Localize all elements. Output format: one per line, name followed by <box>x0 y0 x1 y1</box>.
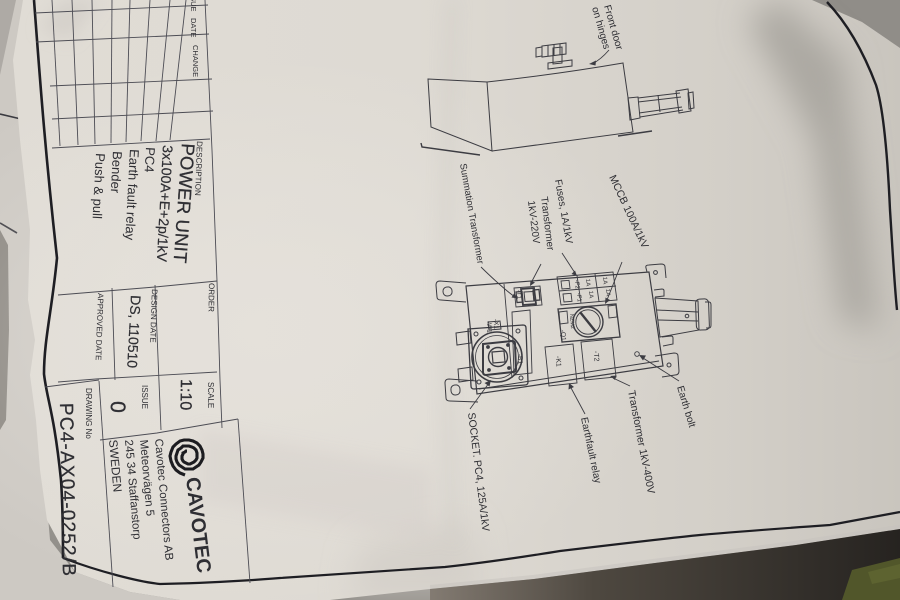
svg-text:ISSUE: ISSUE <box>189 0 198 12</box>
svg-text:PC4: PC4 <box>142 147 158 173</box>
svg-text:-T2: -T2 <box>592 351 600 362</box>
svg-text:-Q1: -Q1 <box>559 330 567 342</box>
svg-text:Bender: Bender <box>108 151 125 194</box>
svg-text:PC4-AX04-0252/B: PC4-AX04-0252/B <box>55 403 79 578</box>
svg-text:-F1: -F1 <box>575 293 582 303</box>
svg-text:1A: 1A <box>601 277 608 285</box>
svg-text:-T1: -T1 <box>515 290 521 300</box>
svg-text:0: 0 <box>106 401 129 413</box>
svg-text:DRAWING No: DRAWING No <box>84 388 93 439</box>
svg-text:DATE: DATE <box>189 18 198 37</box>
svg-text:NZM2: NZM2 <box>568 314 575 329</box>
svg-text:1:10: 1:10 <box>176 379 194 411</box>
svg-text:ISSUE: ISSUE <box>140 385 149 409</box>
svg-text:CHANGE: CHANGE <box>191 45 200 77</box>
svg-text:-B1: -B1 <box>516 354 523 365</box>
svg-text:ORDER: ORDER <box>206 283 216 312</box>
svg-text:-F2: -F2 <box>573 280 580 290</box>
svg-text:1A: 1A <box>584 279 591 287</box>
svg-text:1A: 1A <box>587 291 594 299</box>
svg-text:SCALE: SCALE <box>206 382 215 408</box>
svg-text:-K1: -K1 <box>554 356 562 367</box>
svg-text:DESIGN DATE: DESIGN DATE <box>148 289 159 343</box>
svg-text:-W1: -W1 <box>485 321 492 334</box>
